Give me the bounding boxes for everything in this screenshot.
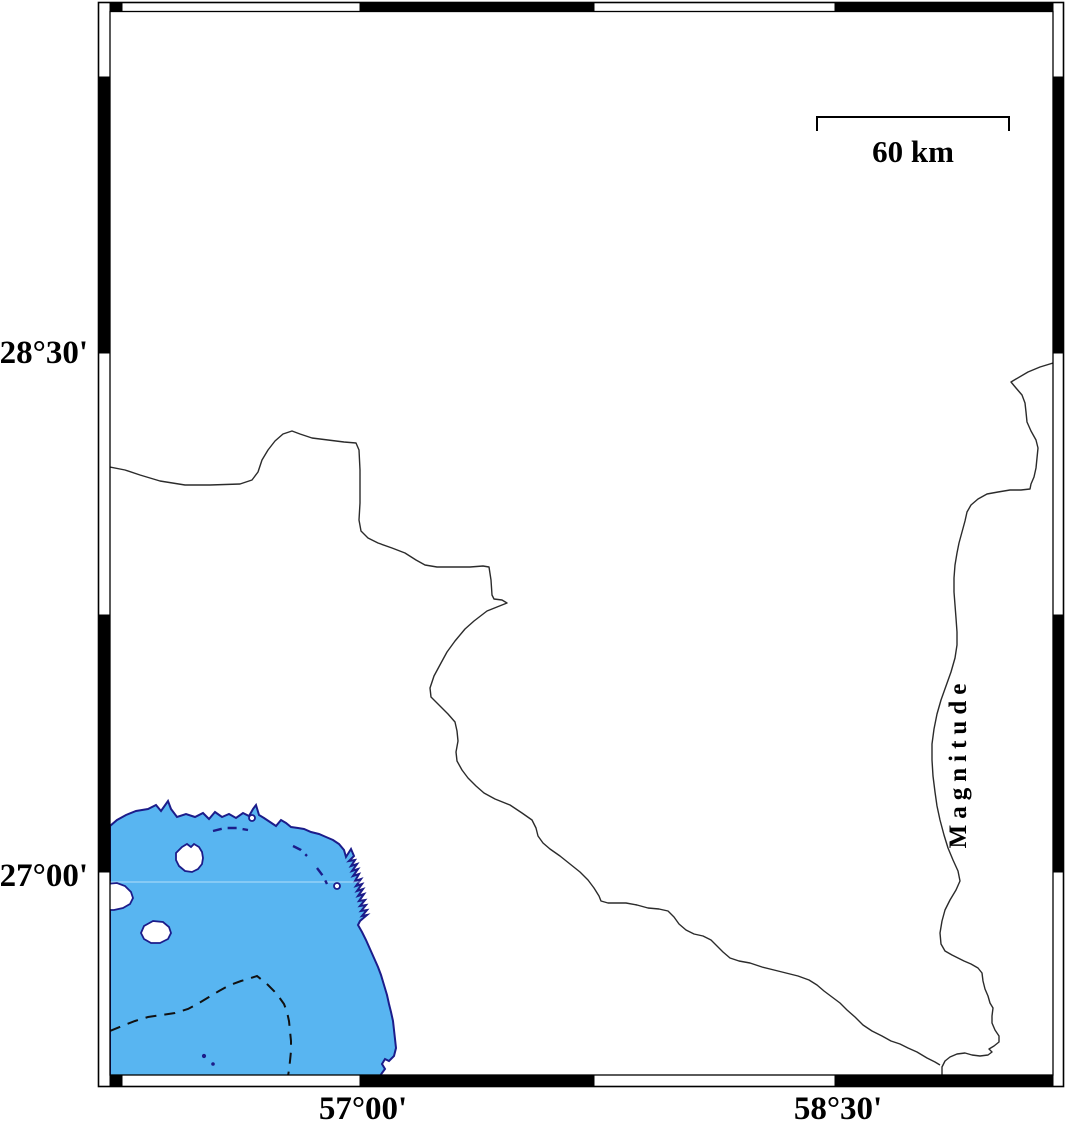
- frame-segment: [99, 615, 111, 872]
- lon-label-5700: 57°00': [319, 1091, 407, 1124]
- lat-label-2830: 28°30': [0, 335, 88, 371]
- islet-dot-2: [334, 883, 340, 889]
- frame-segment: [99, 77, 111, 353]
- frame-segment: [110, 3, 122, 12]
- scale-bar: [817, 117, 1009, 131]
- lat-label-2700: 27°00': [0, 858, 88, 894]
- island-small: [141, 921, 171, 943]
- sea-rock-dot-2: [211, 1062, 215, 1066]
- lon-label-5830: 58°30': [794, 1091, 882, 1124]
- sea-rock-dot-1: [202, 1054, 206, 1058]
- frame-segment: [835, 3, 1053, 12]
- frame-segment: [1053, 77, 1064, 353]
- frame-segment: [835, 1075, 1053, 1086]
- magnitude-axis-label: Magnitude: [945, 678, 972, 849]
- frame-segment: [1053, 615, 1064, 872]
- frame-segment: [360, 3, 594, 12]
- frame-segment: [110, 1075, 122, 1086]
- map-canvas: Magnitude 60 km: [0, 0, 1066, 1124]
- map-content: Magnitude 60 km: [106, 117, 1053, 1076]
- island-large: [176, 844, 203, 872]
- frame-segment: [360, 1075, 594, 1086]
- islet-dot-1: [249, 815, 255, 821]
- scale-bar-label: 60 km: [872, 134, 954, 169]
- map-figure: Magnitude 60 km: [0, 0, 1066, 1124]
